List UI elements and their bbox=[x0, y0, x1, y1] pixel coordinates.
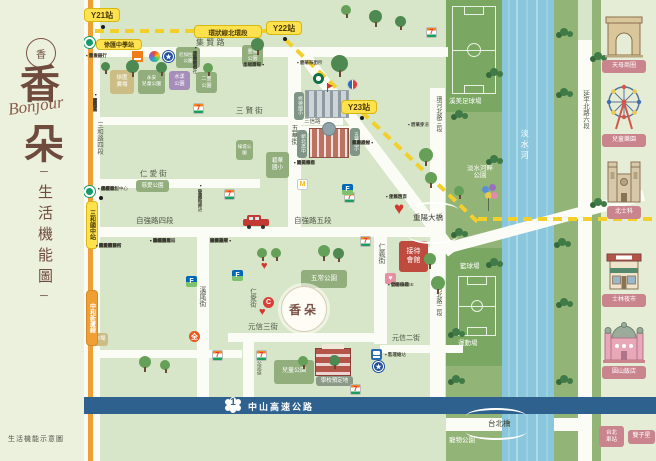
tree-icon bbox=[369, 10, 382, 23]
bush-icon bbox=[455, 228, 463, 236]
ludi-park-block: 綠堤公園 bbox=[236, 140, 253, 160]
map-label: 自強路四段 bbox=[136, 217, 174, 226]
station-badge-y21: Y21站 bbox=[84, 8, 120, 22]
station-badge-xuhui: 徐匯中學站 bbox=[96, 39, 142, 50]
road bbox=[578, 414, 592, 461]
tree-icon bbox=[425, 172, 437, 184]
divider-dash-top: ─ bbox=[40, 166, 48, 178]
tree-icon bbox=[431, 276, 445, 290]
station-dot bbox=[99, 196, 103, 200]
taipei-main-station-pill: 台北 車站 bbox=[599, 426, 624, 447]
metro-logo bbox=[84, 37, 95, 48]
map-label: 籃球場 bbox=[460, 263, 480, 270]
seven-eleven-logo: 7 bbox=[193, 103, 204, 114]
facility-item: ▪ 碧華布街 bbox=[297, 60, 318, 66]
grand-hotel-icon bbox=[602, 316, 646, 364]
highway-number: 1 bbox=[224, 397, 242, 408]
ring-line-label: 環狀線北環段 bbox=[194, 25, 262, 38]
seven-eleven-logo: 7 bbox=[212, 350, 223, 361]
xuhui-plaza-block: 徐匯 廣場 bbox=[110, 70, 134, 94]
wuchang-park-block: 五常公園 bbox=[301, 270, 347, 288]
soccer-field bbox=[452, 6, 496, 94]
cathedral-icon bbox=[604, 156, 644, 204]
life-function-map: 中山高速公路1集 賢 路三 賢 街三信路五華街仁 愛 街自強路四段自強路五段仁愛… bbox=[0, 0, 656, 461]
tree-icon bbox=[271, 248, 281, 258]
map-label: 三信路 bbox=[304, 119, 321, 125]
highway-label: 中山高速公路 bbox=[248, 400, 314, 413]
station-dot bbox=[101, 25, 105, 29]
bush-icon bbox=[560, 28, 568, 36]
map-label: 溪尾街 bbox=[198, 286, 206, 307]
mall-flower-logo bbox=[149, 51, 160, 62]
facility-item: ▪ 運動中心 bbox=[192, 45, 198, 69]
tree-icon bbox=[203, 63, 213, 73]
facility-item: ▪ 客運總站 bbox=[385, 352, 406, 358]
map-label: 重陽大橋 bbox=[413, 214, 443, 223]
tree-icon bbox=[298, 356, 308, 366]
ciai-park-block: 慈愛公園 bbox=[136, 180, 169, 192]
highschool-building-illustration bbox=[309, 128, 349, 158]
station-dot bbox=[283, 37, 287, 41]
landmark-label: 圓山飯店 bbox=[602, 366, 646, 379]
map-label: 溪美足球場 bbox=[449, 98, 482, 105]
tree-icon bbox=[156, 62, 167, 73]
map-label: 寵物公園 bbox=[449, 437, 475, 444]
road bbox=[197, 234, 209, 400]
facility-item: ▪ 大呼過癮 bbox=[150, 238, 171, 244]
seven-eleven-logo: 7 bbox=[256, 350, 267, 361]
starbucks-logo bbox=[313, 73, 324, 84]
map-label: 仁 愛 街 bbox=[140, 170, 167, 179]
familymart-logo: F bbox=[342, 184, 353, 195]
facility-item: ▪ 公園綠地 bbox=[388, 282, 409, 288]
bush-icon bbox=[452, 375, 460, 383]
pxmart-logo: 全 bbox=[189, 331, 200, 342]
bush-icon bbox=[490, 68, 498, 76]
facility-item: ▪ 寶雅 bbox=[92, 92, 98, 107]
brand-title-bottom: 朵 bbox=[24, 112, 64, 170]
highway-band bbox=[0, 397, 656, 414]
divider-dash-bottom: ─ bbox=[40, 290, 48, 302]
tree-icon bbox=[454, 186, 464, 196]
ferris-wheel-icon bbox=[602, 82, 646, 132]
landmark-label: 士林夜市 bbox=[602, 294, 646, 307]
map-subtitle: 生活機能圖 bbox=[34, 184, 55, 289]
site-label: 香朵 bbox=[289, 301, 319, 318]
bush-icon bbox=[560, 88, 568, 96]
planned-school-tag: 學校預定地 bbox=[316, 376, 353, 386]
map-label: 環河北路三段 bbox=[434, 96, 441, 132]
river-streak bbox=[546, 0, 548, 461]
map-label: 三 賢 街 bbox=[236, 107, 263, 116]
facility-item: ▪ 元大銀行 bbox=[86, 53, 107, 59]
map-label: 運動場 bbox=[458, 340, 478, 347]
bush-icon bbox=[560, 298, 568, 306]
twin-towers-pill: 雙子星 bbox=[628, 430, 655, 444]
facility-item: ▪ 圖書館分館 bbox=[96, 243, 121, 249]
tree-icon bbox=[318, 245, 330, 257]
balloons-icon bbox=[478, 184, 500, 212]
erchong-park-block: 二重 公園 bbox=[196, 72, 217, 93]
road bbox=[554, 418, 578, 431]
tree-icon bbox=[251, 38, 264, 51]
arc-de-triomphe-icon bbox=[604, 14, 644, 58]
transit-station-icon bbox=[371, 349, 382, 360]
map-label: 元信二街 bbox=[392, 335, 420, 343]
site-marker: 香朵 bbox=[281, 286, 327, 332]
tree-icon bbox=[424, 253, 436, 265]
seven-eleven-logo: 7 bbox=[360, 236, 371, 247]
basketball-court bbox=[458, 276, 496, 336]
tree-icon bbox=[257, 248, 267, 258]
facility-item: 信義房屋 ▪ bbox=[352, 140, 373, 146]
map-label: 台北橋 bbox=[488, 420, 511, 429]
bush-icon bbox=[490, 258, 498, 266]
facility-item: ▪ 85度C bbox=[98, 186, 114, 192]
bihua-elementary-block: 碧華 國小 bbox=[266, 152, 289, 178]
metro-line-badge: 中和新蘆線 bbox=[86, 290, 98, 346]
shuiyang-park-block: 水漾 公園 bbox=[169, 71, 190, 90]
tree-icon bbox=[101, 62, 110, 71]
highway-number-shield: 1 bbox=[224, 396, 242, 414]
hospital-heart-icon: ♥ bbox=[394, 200, 404, 217]
map-label: 仁愛街 bbox=[248, 288, 255, 308]
metro-logo bbox=[84, 186, 95, 197]
landmark-label: 兒童樂園 bbox=[602, 134, 646, 147]
seven-eleven-logo: 7 bbox=[224, 189, 235, 200]
xiude-elementary-tag: 修德國小 bbox=[294, 92, 304, 120]
night-market-shop-icon bbox=[604, 246, 644, 292]
school-crest-logo: ★ bbox=[163, 51, 174, 62]
road bbox=[82, 227, 444, 237]
bush-icon bbox=[455, 110, 463, 118]
bush-icon bbox=[490, 155, 498, 163]
hospital-heart-icon: ♥ bbox=[261, 261, 268, 272]
station-badge-y22: Y22站 bbox=[266, 21, 302, 35]
facility-item: ▪ 早餐坊 bbox=[386, 194, 402, 200]
facility-item: ▪ 安親班 bbox=[197, 183, 203, 203]
landmark-label: 北士科 bbox=[607, 206, 641, 219]
map-label: 淡水河 bbox=[520, 129, 529, 162]
tree-icon bbox=[419, 148, 433, 162]
xinbei-highschool-tag: 新北高中 bbox=[297, 130, 307, 158]
road bbox=[243, 342, 254, 398]
tree-icon bbox=[331, 55, 348, 72]
facility-item: ▪ 河濱步道 bbox=[408, 122, 429, 128]
tree-icon bbox=[341, 5, 351, 15]
car-icon bbox=[241, 215, 271, 228]
river-streak bbox=[536, 0, 538, 461]
tree-icon bbox=[139, 356, 151, 368]
brand-sidebar: 香 香 Bonjour 朵 ─ 生活機能圖 ─ 生活機能示意圖 bbox=[0, 0, 84, 461]
bush-icon bbox=[560, 375, 568, 383]
bush-icon bbox=[558, 238, 566, 246]
riverside-strip-east bbox=[554, 0, 578, 398]
familymart-logo: F bbox=[186, 276, 197, 287]
facility-item: ▪ 陸光市場 bbox=[294, 160, 315, 166]
carrefour-logo bbox=[347, 79, 358, 90]
bush-icon bbox=[452, 328, 460, 336]
road bbox=[228, 333, 380, 342]
bush-icon bbox=[594, 52, 602, 60]
map-label: 延平北路六段 bbox=[581, 90, 588, 129]
facility-item: 眼科診所 ▪ bbox=[210, 238, 231, 244]
childrens-park-block: 兒童公園 bbox=[274, 360, 314, 384]
map-label: 仁義街 bbox=[377, 243, 385, 264]
school-crest-logo: ★ bbox=[373, 361, 384, 372]
map-label: 元信三街 bbox=[248, 323, 278, 332]
tree-icon bbox=[329, 355, 340, 366]
facility-item: 幸福市場 ▪ bbox=[243, 62, 264, 68]
map-label: 三和路四段 bbox=[95, 122, 102, 155]
station-dot bbox=[360, 116, 364, 120]
hospital-heart-icon: ♥ bbox=[259, 307, 266, 318]
station-badge-y23: Y23站 bbox=[341, 100, 377, 114]
tree-icon bbox=[395, 16, 406, 27]
tree-icon bbox=[333, 248, 344, 259]
map-footer-note: 生活機能示意圖 bbox=[8, 434, 64, 444]
tree-icon bbox=[160, 360, 170, 370]
seven-eleven-logo: 7 bbox=[426, 27, 437, 38]
bush-icon bbox=[594, 198, 602, 206]
landmark-label: 天母商圈 bbox=[602, 60, 646, 73]
map-canvas: 中山高速公路1集 賢 路三 賢 街三信路五華街仁 愛 街自強路四段自強路五段仁愛… bbox=[0, 0, 656, 461]
familymart-logo: F bbox=[232, 270, 243, 281]
seven-eleven-logo: 7 bbox=[350, 384, 361, 395]
map-label: 集 賢 路 bbox=[196, 38, 224, 47]
tree-icon bbox=[126, 60, 139, 73]
map-label: 自強路五段 bbox=[294, 217, 332, 226]
station-badge-sanhe: 三和國中站 bbox=[86, 201, 98, 249]
map-label: 淡水河畔 公園 bbox=[456, 165, 504, 180]
mcdonalds-logo: M bbox=[297, 179, 308, 190]
